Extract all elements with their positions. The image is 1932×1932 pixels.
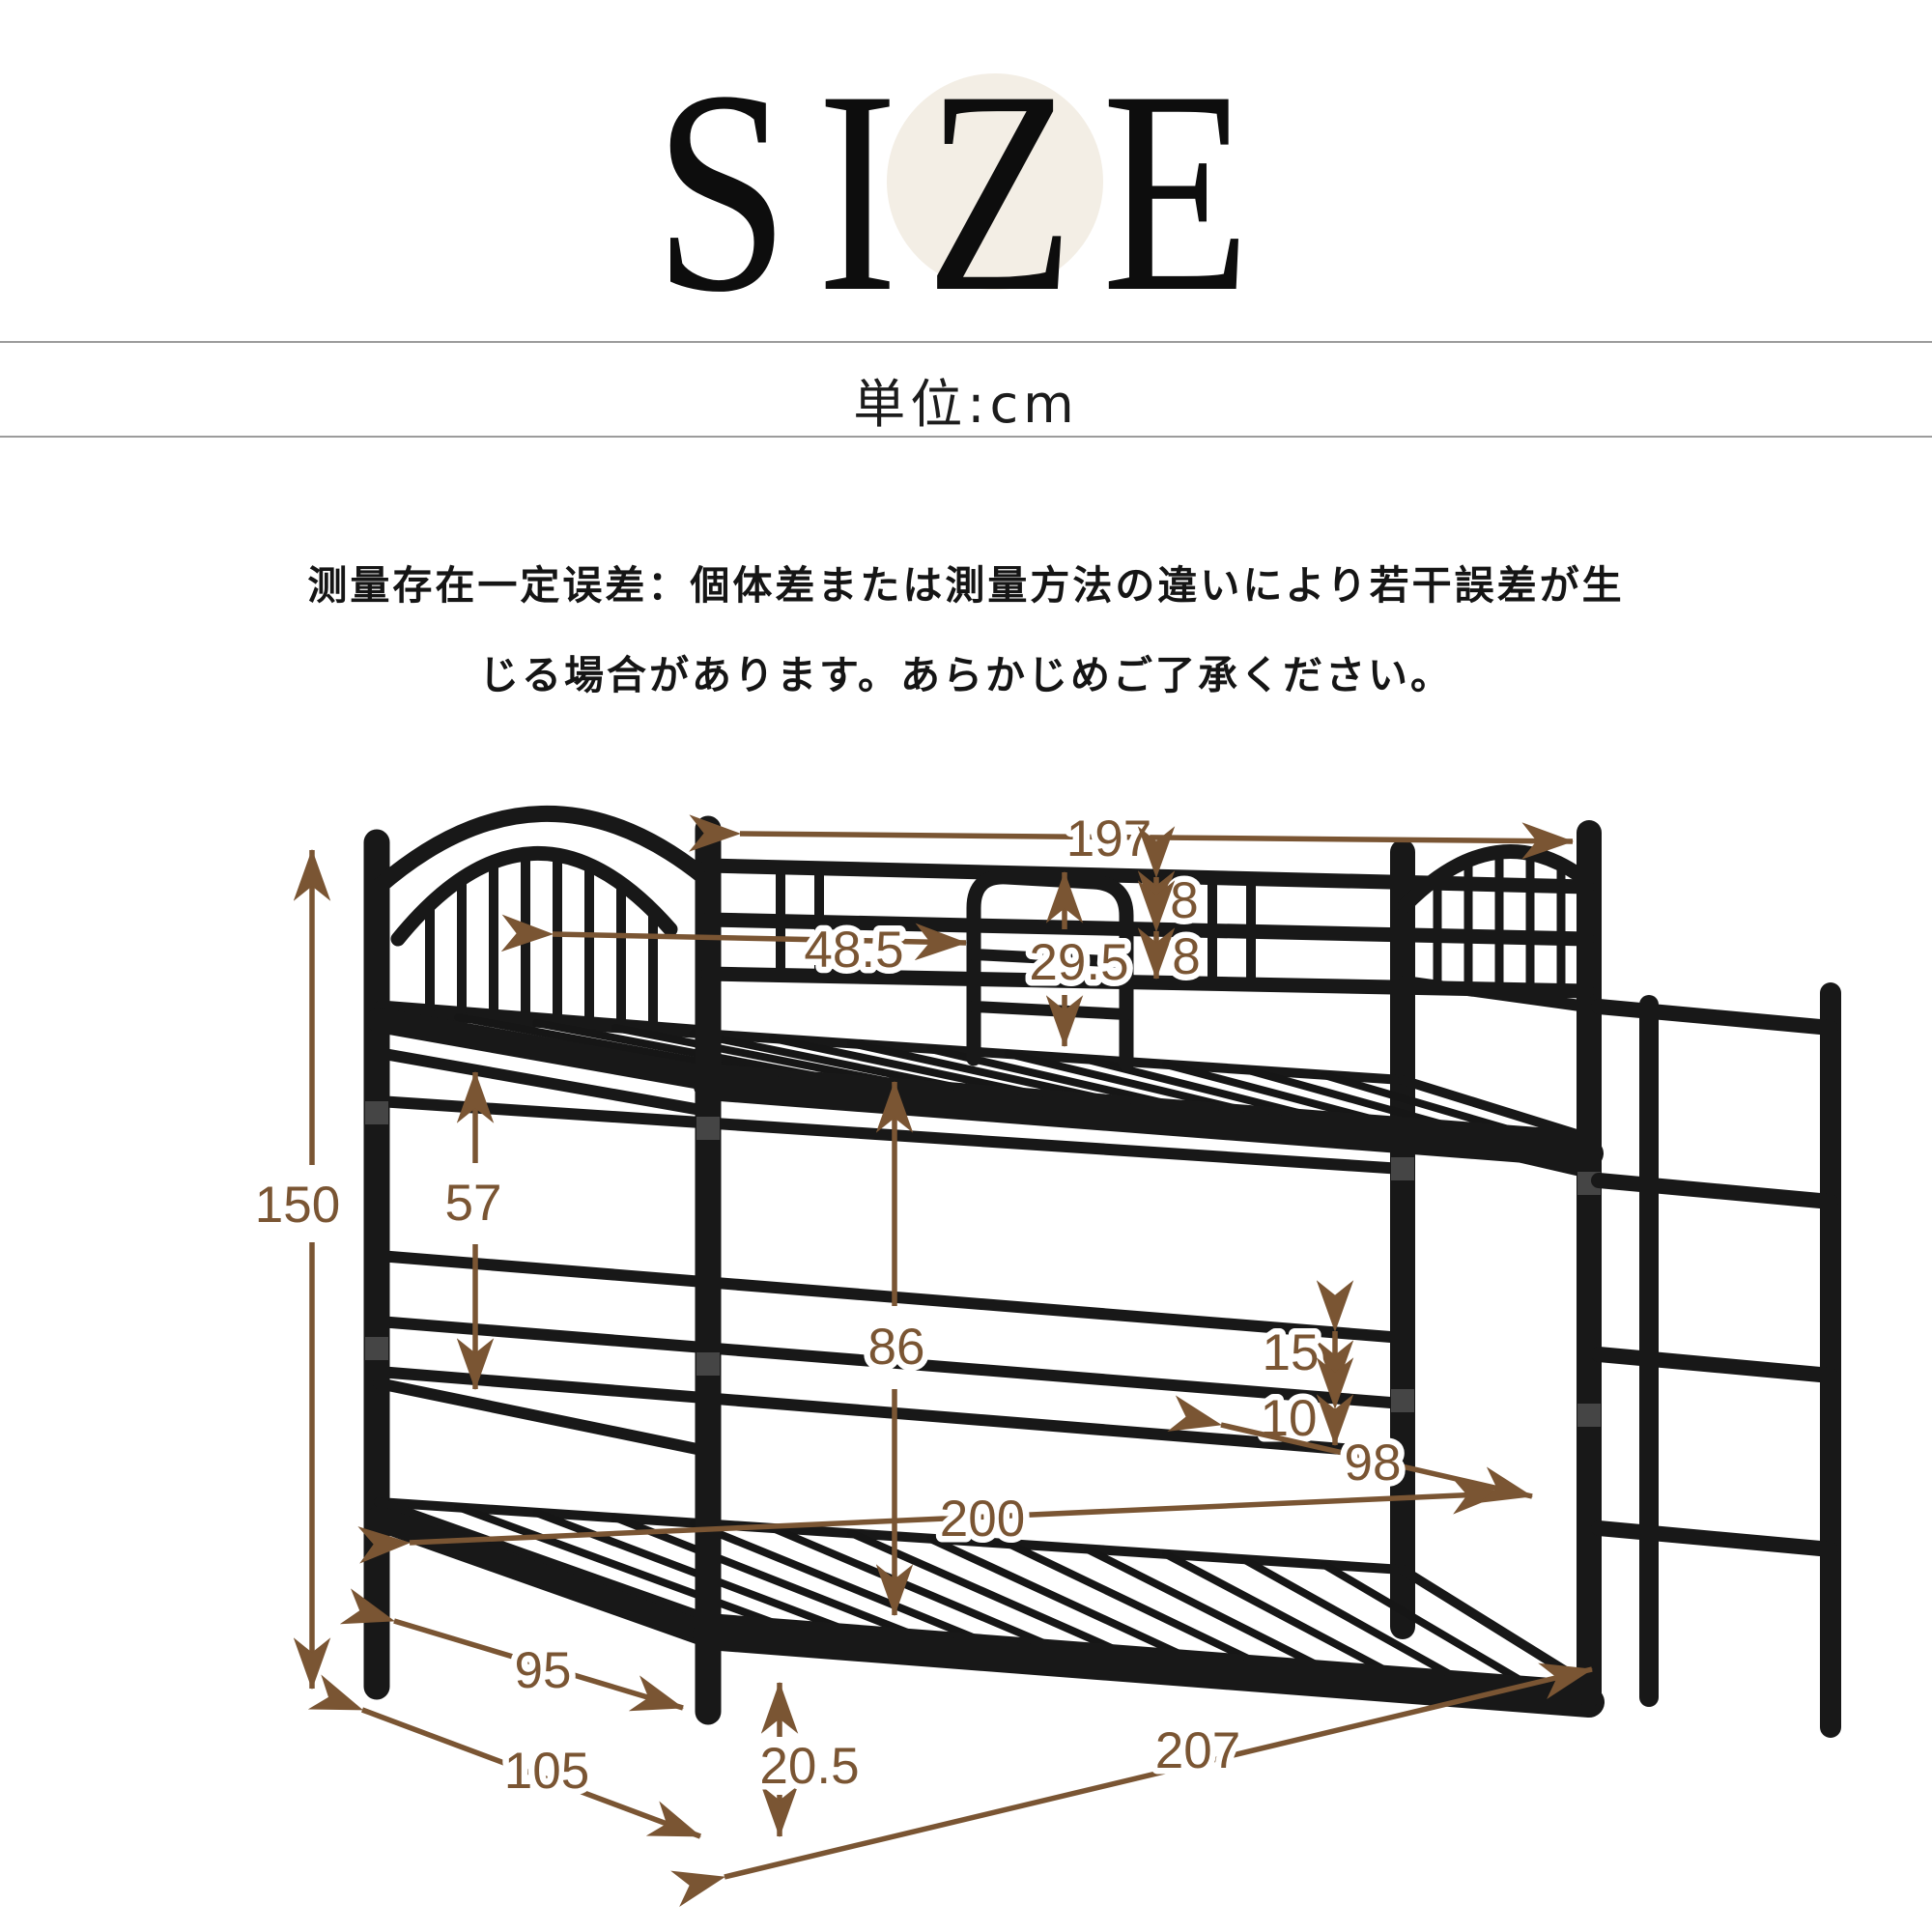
dimension-197: 197: [740, 810, 1573, 867]
dimension-98: 98: [1221, 1425, 1532, 1496]
dim-label-200: 200: [940, 1491, 1025, 1548]
dim-label-105: 105: [504, 1743, 589, 1800]
dim-label-57: 57: [445, 1175, 502, 1232]
ladder: [1599, 993, 1831, 1727]
dimension-150: 150: [255, 850, 340, 1689]
dim-label-197: 197: [1066, 810, 1151, 867]
dimension-95: 95: [394, 1621, 683, 1708]
dim-label-86: 86: [868, 1319, 925, 1376]
dim-label-20-5: 20.5: [759, 1738, 859, 1795]
dimension-57: 57: [445, 1072, 502, 1389]
headboard-left: [379, 813, 704, 1032]
dim-label-150: 150: [255, 1177, 340, 1234]
bunk-bed-dimension-diagram: 197 48.5 29.5 8 8 150: [0, 0, 1932, 1932]
dim-label-29-5: 29.5: [1029, 934, 1128, 991]
dim-label-48-5: 48.5: [804, 922, 903, 979]
headboard-right-spindles: [1437, 852, 1561, 1003]
back-rails: [379, 1101, 1403, 1454]
dim-label-8-upper: 8: [1170, 872, 1198, 929]
size-infographic: SIZE 単位:cm 测量存在一定误差：個体差または測量方法の違いにより若干誤差…: [0, 0, 1932, 1932]
dimension-29-5: 29.5: [1029, 872, 1128, 1046]
dim-label-95: 95: [515, 1642, 572, 1699]
dim-label-98: 98: [1345, 1435, 1402, 1492]
dim-label-8-lower: 8: [1172, 928, 1200, 985]
dimension-105: 105: [362, 1710, 700, 1836]
headboard-left-spindles: [430, 855, 653, 1028]
dimension-20-5: 20.5: [759, 1683, 859, 1836]
dim-label-15: 15: [1263, 1324, 1320, 1381]
dim-label-207: 207: [1155, 1722, 1240, 1779]
